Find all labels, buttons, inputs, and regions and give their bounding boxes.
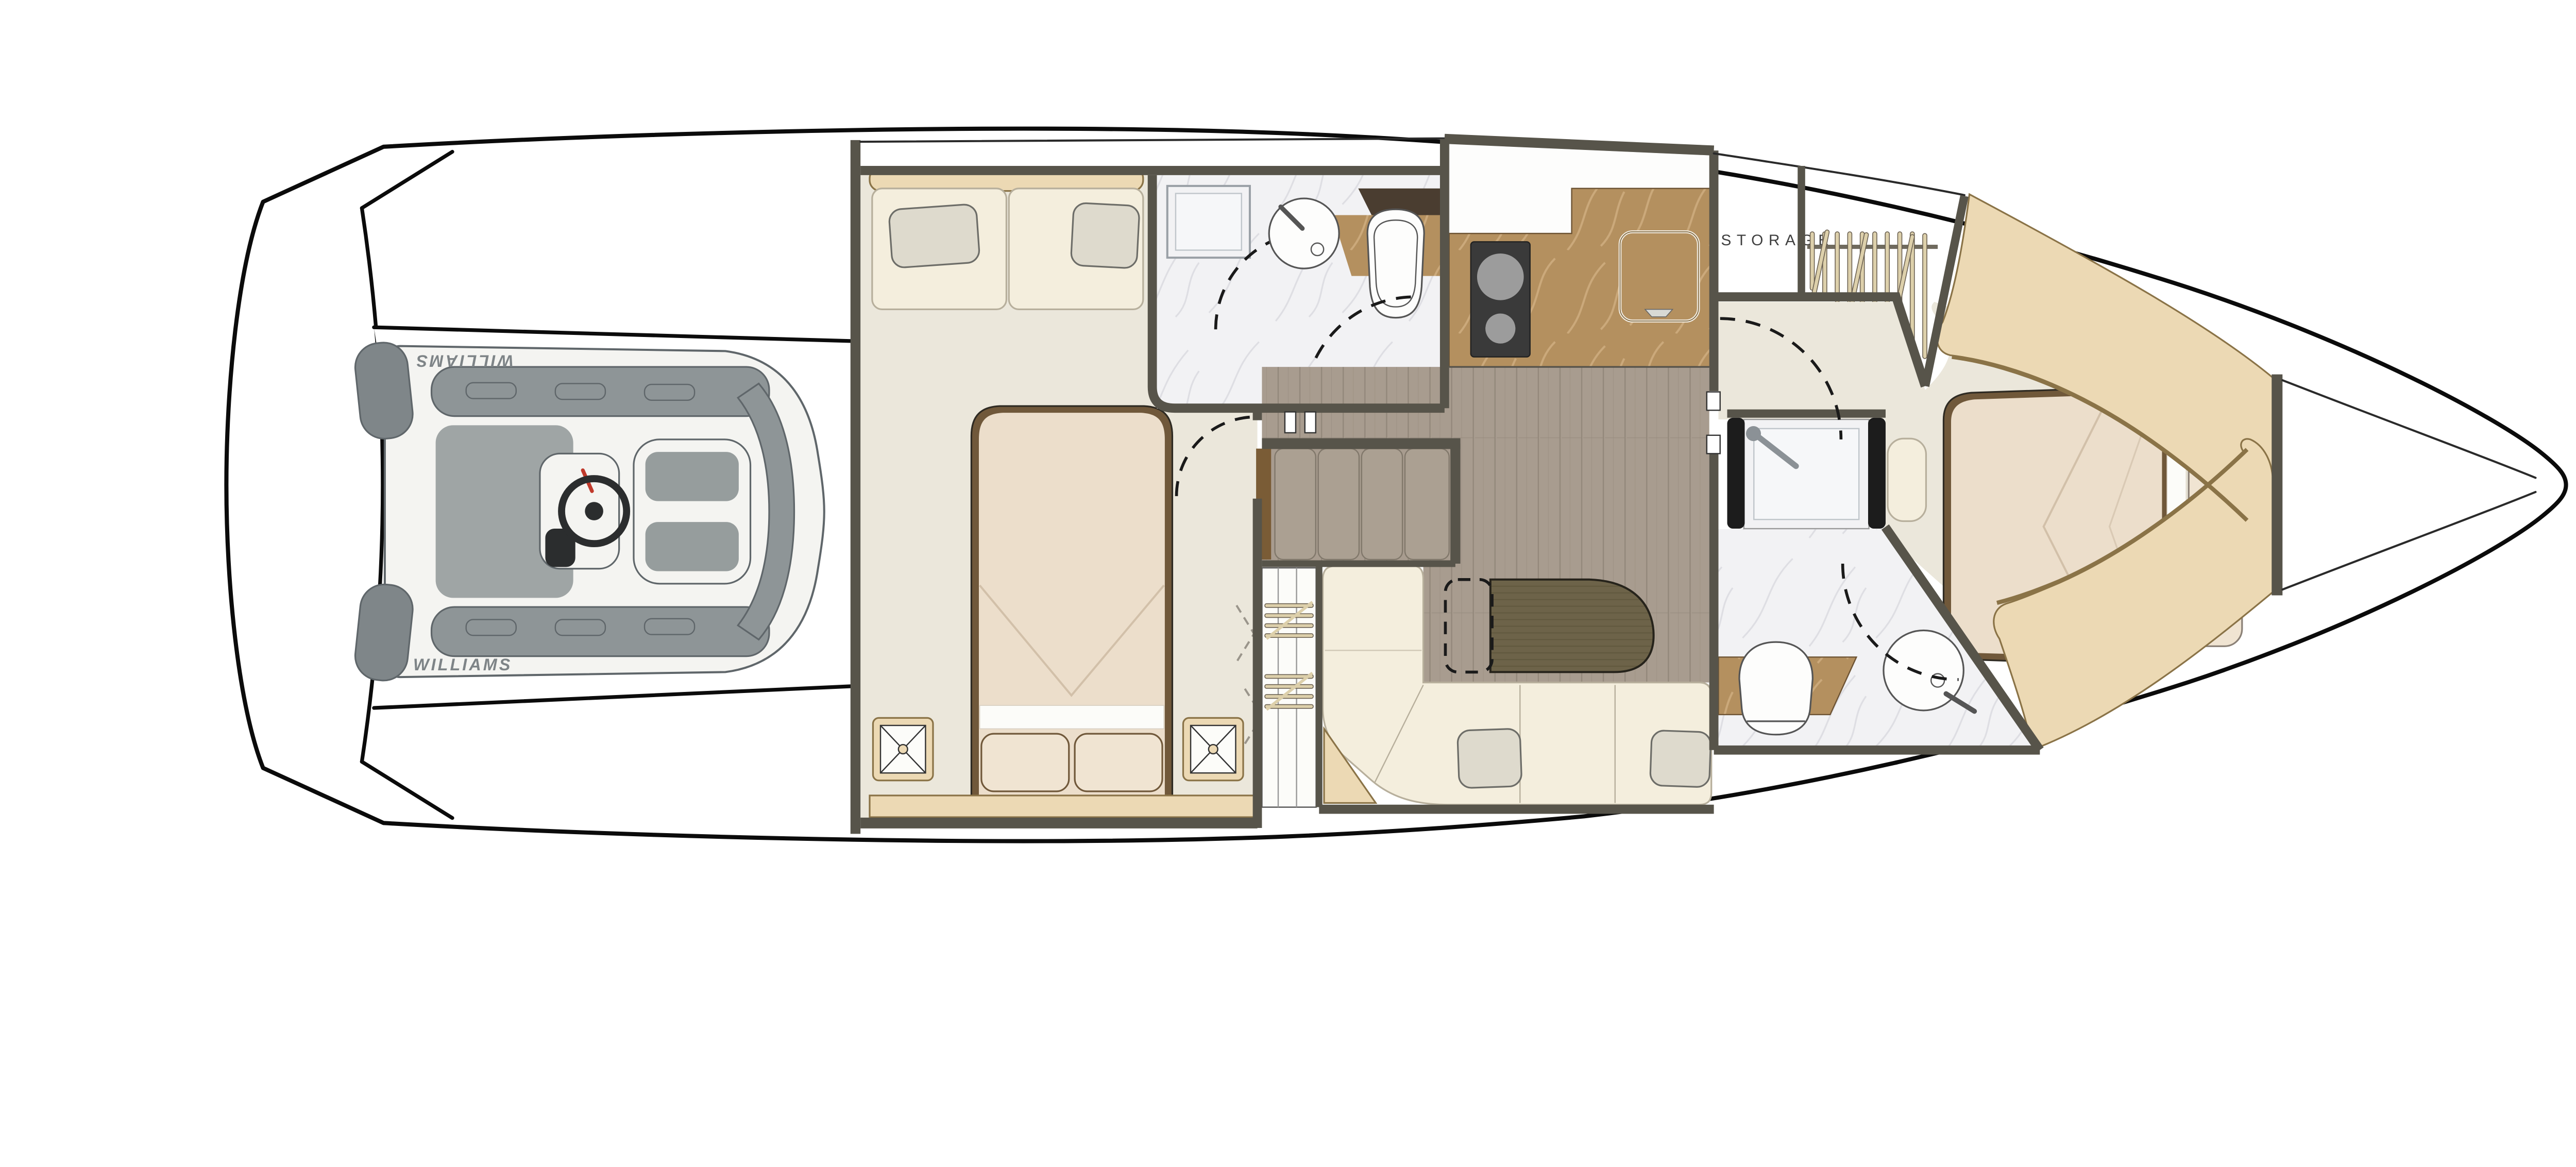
tender-garage: WILLIAMS WILLIAMS <box>353 327 852 708</box>
stair-tread <box>1362 449 1402 560</box>
door-post <box>1285 412 1296 432</box>
salon-dinette <box>1256 367 1711 807</box>
tender-brand-bottom: WILLIAMS <box>413 655 512 674</box>
mid-bath-toilet <box>1367 209 1424 317</box>
fwd-shower <box>1727 418 1885 529</box>
stern-cylinder-top <box>353 340 415 441</box>
shower-glass-left <box>1727 418 1744 529</box>
stair-tread <box>1318 449 1359 560</box>
mid-cabin-bed <box>971 406 1172 812</box>
nightstand-left <box>873 718 933 780</box>
shower-glass-right <box>1868 418 1886 529</box>
yacht-lower-deck-plan: WILLIAMS WILLIAMS <box>0 0 2576 944</box>
mid-bath-shower <box>1167 186 1250 258</box>
mid-bath-sink <box>1269 198 1339 268</box>
burner-small <box>1485 314 1515 344</box>
nightstand-knob <box>1209 745 1218 754</box>
seat-pad-top <box>646 452 739 501</box>
galley-sink <box>1620 232 1699 321</box>
door-post <box>1707 435 1720 454</box>
door-post <box>1305 412 1316 432</box>
bed-pillow-right <box>1075 734 1162 791</box>
wheel-hub <box>585 502 603 520</box>
nightstand-right <box>1183 718 1243 780</box>
dinette-pillow-right <box>1650 730 1711 787</box>
seat-pad-bottom <box>646 522 739 571</box>
companionway-stairs <box>1256 449 1449 560</box>
aft-cabinet-band <box>870 796 1258 817</box>
bed-pillow-left <box>981 734 1069 791</box>
floorplan-canvas: WILLIAMS WILLIAMS <box>0 0 2576 944</box>
galley <box>1449 143 1714 367</box>
under-stair-shelves <box>1262 568 1316 807</box>
sofa-pillow-left <box>889 204 980 268</box>
sheet-band <box>980 705 1164 729</box>
tender-brand-top: WILLIAMS <box>414 351 513 370</box>
sofa-pillow-right <box>1071 202 1140 268</box>
door-post <box>1707 392 1720 411</box>
dinette-pillow-left <box>1458 729 1522 788</box>
cooktop <box>1471 242 1530 357</box>
fwd-bath-toilet <box>1739 642 1812 735</box>
mid-cabin-sofa <box>870 167 1143 309</box>
dinette-table <box>1490 580 1654 672</box>
stern-cylinder-bottom <box>353 582 415 683</box>
burner-large <box>1477 253 1524 300</box>
williams-tender: WILLIAMS WILLIAMS <box>353 340 824 683</box>
stair-tread <box>1275 449 1316 560</box>
fwd-bench <box>1888 438 1926 521</box>
stair-tread <box>1405 449 1449 560</box>
nightstand-knob <box>899 745 908 754</box>
